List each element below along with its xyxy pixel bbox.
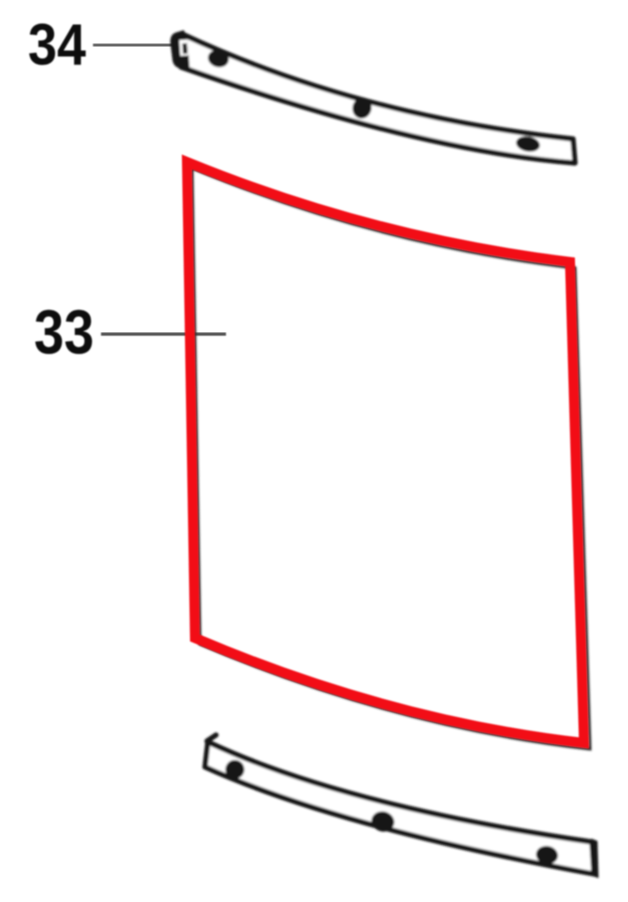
svg-text:33: 33 bbox=[34, 299, 94, 368]
svg-text:34: 34 bbox=[28, 13, 86, 78]
